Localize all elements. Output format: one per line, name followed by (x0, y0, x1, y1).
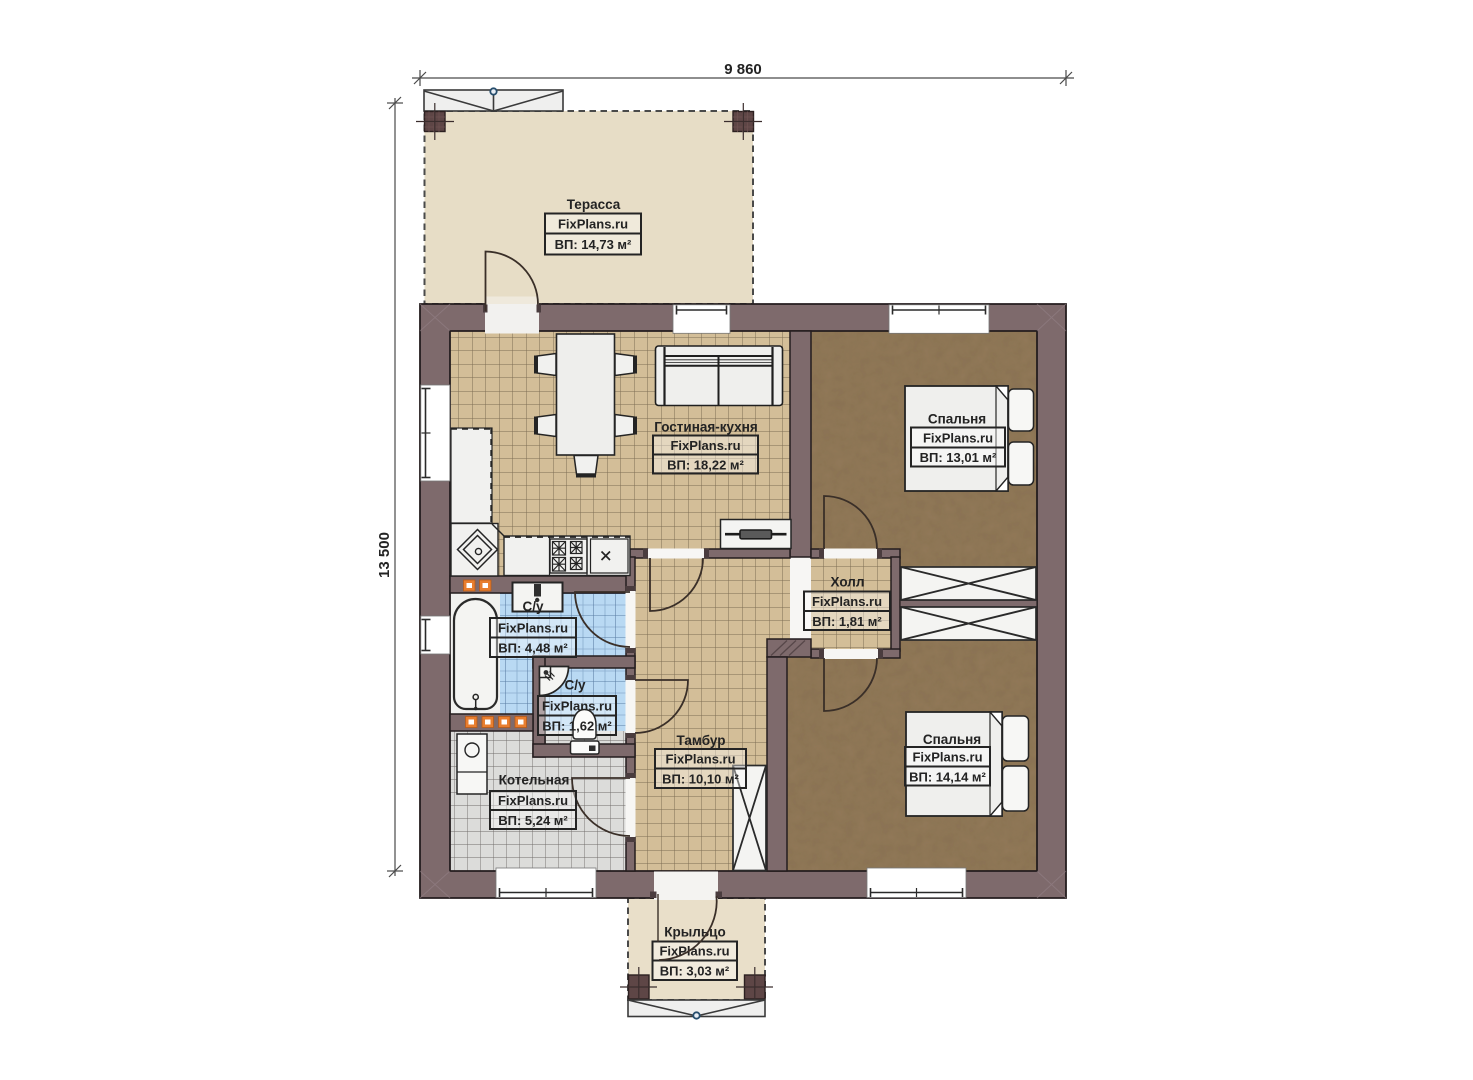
svg-text:FixPlans.ru: FixPlans.ru (659, 944, 729, 959)
svg-text:ВП: 1,62 м²: ВП: 1,62 м² (542, 719, 612, 734)
svg-text:ВП: 13,01 м²: ВП: 13,01 м² (920, 450, 997, 465)
svg-text:FixPlans.ru: FixPlans.ru (498, 621, 568, 636)
svg-text:Тамбур: Тамбур (677, 733, 726, 748)
svg-text:FixPlans.ru: FixPlans.ru (670, 438, 740, 453)
svg-text:ВП: 5,24 м²: ВП: 5,24 м² (498, 813, 568, 828)
svg-text:Спальня: Спальня (923, 732, 981, 747)
svg-text:FixPlans.ru: FixPlans.ru (498, 793, 568, 808)
svg-text:ВП: 3,03 м²: ВП: 3,03 м² (660, 964, 730, 979)
svg-text:ВП: 4,48 м²: ВП: 4,48 м² (498, 641, 568, 656)
svg-text:13 500: 13 500 (376, 532, 393, 578)
svg-text:С/у: С/у (522, 599, 544, 614)
svg-text:ВП: 14,73 м²: ВП: 14,73 м² (555, 237, 632, 252)
svg-text:FixPlans.ru: FixPlans.ru (558, 217, 628, 232)
svg-text:Крыльцо: Крыльцо (664, 925, 725, 940)
svg-text:Котельная: Котельная (499, 773, 570, 788)
svg-text:FixPlans.ru: FixPlans.ru (665, 752, 735, 767)
svg-text:ВП: 10,10 м²: ВП: 10,10 м² (662, 772, 739, 787)
svg-text:Спальня: Спальня (928, 412, 986, 427)
svg-text:FixPlans.ru: FixPlans.ru (812, 594, 882, 609)
svg-text:Холл: Холл (831, 575, 865, 590)
svg-text:ВП: 18,22 м²: ВП: 18,22 м² (667, 458, 744, 473)
svg-text:FixPlans.ru: FixPlans.ru (542, 699, 612, 714)
svg-text:FixPlans.ru: FixPlans.ru (923, 431, 993, 446)
svg-text:ВП: 14,14 м²: ВП: 14,14 м² (909, 770, 986, 785)
svg-text:Терасса: Терасса (567, 197, 621, 212)
svg-text:С/у: С/у (564, 678, 586, 693)
svg-text:ВП: 1,81 м²: ВП: 1,81 м² (812, 614, 882, 629)
svg-text:Гостиная-кухня: Гостиная-кухня (654, 420, 757, 435)
svg-text:9 860: 9 860 (724, 61, 762, 78)
svg-text:FixPlans.ru: FixPlans.ru (912, 750, 982, 765)
